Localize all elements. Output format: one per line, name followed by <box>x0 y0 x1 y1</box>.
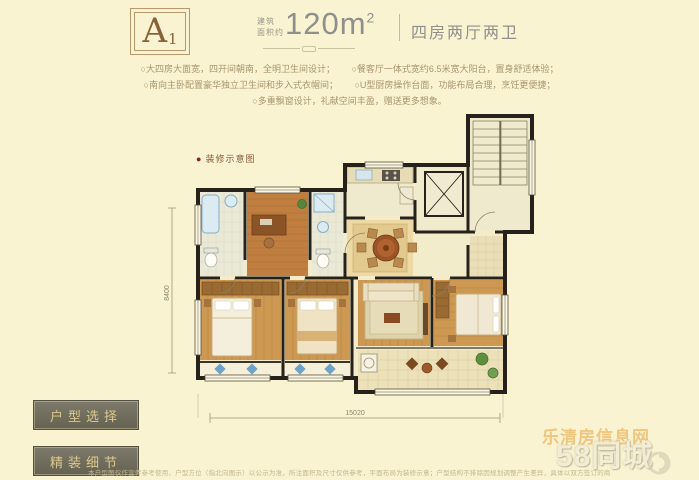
wardrobe-icon <box>287 282 348 295</box>
ornament-divider <box>263 46 355 51</box>
sofa-icon <box>368 283 414 291</box>
room-dining <box>347 220 417 276</box>
feature-line-1: ○大四房大面宽，四开间朝南，全明卫生间设计； ○餐客厅一体式宽约6.5米宽大阳台… <box>100 61 599 77</box>
nightstand-icon <box>254 299 261 307</box>
watermark-site-text: 乐清房信息网 <box>542 423 650 448</box>
room-study <box>247 192 308 276</box>
fridge-icon <box>400 187 413 204</box>
nightstand-icon <box>288 299 295 307</box>
toilet-tank <box>316 249 330 254</box>
balcony <box>358 350 503 390</box>
plant-icon <box>488 368 498 378</box>
foyer-tile <box>470 236 503 276</box>
sink-icon <box>225 195 237 207</box>
plant-icon <box>298 200 307 209</box>
wardrobe-icon <box>202 282 279 295</box>
page: A 1 建筑 面积约 120m2 四房两厅两卫 ○大四房大面宽，四开间朝南，全明… <box>0 0 699 480</box>
room-kitchen <box>347 167 413 216</box>
feature-item: ○U型厨房操作台面，功能布局合理，烹饪更便捷； <box>355 80 556 90</box>
area-prefix: 建筑 面积约 <box>257 17 284 39</box>
unit-code-inner-frame: A 1 <box>134 12 186 51</box>
kitchen-sink-icon <box>356 170 372 180</box>
toilet-icon <box>205 253 217 267</box>
feature-item: ○大四房大面宽，四开间朝南，全明卫生间设计； <box>141 64 335 74</box>
dimension-left: 8400 <box>164 208 176 373</box>
elevator <box>425 172 463 216</box>
nightstand-icon <box>339 299 346 307</box>
feature-line-2: ○南向主卧配置豪华独立卫生间和步入式衣帽间； ○U型厨房操作台面，功能布局合理，… <box>100 77 599 93</box>
plant-icon <box>476 353 488 365</box>
layout-description: 四房两厅两卫 <box>411 19 519 43</box>
button-label: 户型选择 <box>50 406 122 425</box>
area-exponent: 2 <box>367 10 376 26</box>
room-living <box>358 280 430 346</box>
unit-code-box: A 1 <box>130 8 190 55</box>
nightstand-icon <box>204 299 211 307</box>
chair-icon <box>264 238 274 248</box>
header-divider <box>399 14 400 41</box>
sink-icon <box>318 222 329 233</box>
area-prefix-line1: 建筑 <box>257 17 284 28</box>
toilet-tank <box>204 248 218 253</box>
bay-window <box>200 362 281 376</box>
unit-code-sub: 1 <box>168 29 178 50</box>
dim-height-label: 8400 <box>164 285 171 301</box>
nightstand-icon <box>448 335 456 342</box>
feature-item: ○南向主卧配置豪华独立卫生间和步入式衣帽间； <box>144 80 338 90</box>
toilet-icon <box>317 254 329 268</box>
feature-item: ○餐客厅一体式宽约6.5米宽大阳台，置身舒适体验； <box>352 64 559 74</box>
balcony-table-icon <box>422 363 432 373</box>
room-bathroom-1 <box>200 192 243 276</box>
disclaimer-text: 本户型图仅作宣传参考使用，户型方位（指北向图示）以公示为准，所注面积及尺寸仅供参… <box>88 467 611 477</box>
room-bathroom-2 <box>312 192 343 276</box>
stove-icon <box>382 170 400 181</box>
area-value: 120m2 <box>285 6 375 42</box>
floor-plan: 15020 8400 <box>160 105 550 435</box>
tv-cabinet-icon <box>423 303 428 335</box>
58-swirl-logo-icon <box>646 450 672 476</box>
washer-icon <box>361 354 377 372</box>
room-master-bedroom <box>434 280 503 346</box>
dim-width-label: 15020 <box>345 410 365 417</box>
nightstand-icon <box>448 286 456 293</box>
coffee-table-icon <box>384 313 400 323</box>
bathtub-icon <box>202 195 219 233</box>
stairwell <box>470 118 530 230</box>
feature-list: ○大四房大面宽，四开间朝南，全明卫生间设计； ○餐客厅一体式宽约6.5米宽大阳台… <box>100 61 599 110</box>
area-prefix-line2: 面积约 <box>257 28 284 39</box>
button-unit-select[interactable]: 户型选择 <box>33 400 139 430</box>
unit-code: A <box>142 14 167 50</box>
dimension-bottom: 15020 <box>198 394 503 423</box>
